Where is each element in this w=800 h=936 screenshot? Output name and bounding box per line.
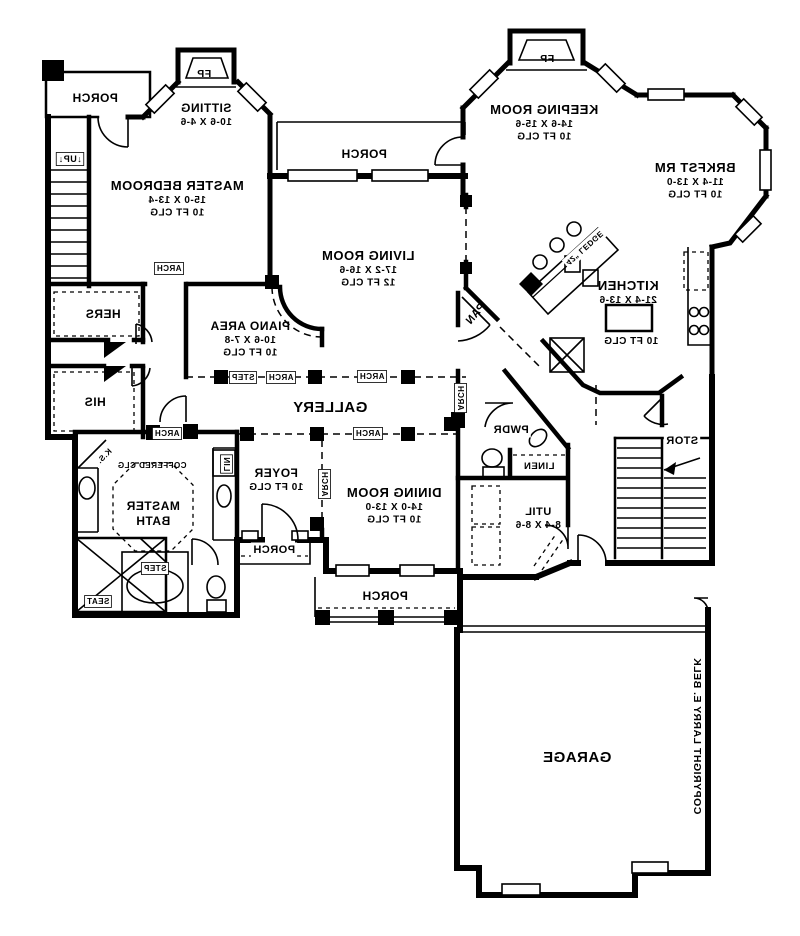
- label-brkfst-rm: BRKFST RM11-4 X 13-010 FT CLG: [654, 160, 735, 201]
- svg-text:21-4 X 13-6: 21-4 X 13-6: [599, 295, 657, 306]
- label-fp-keeping: FP: [540, 53, 554, 65]
- label-arch-gallery-2: ARCH: [357, 371, 386, 383]
- svg-text:ARCH: ARCH: [355, 429, 380, 438]
- window-garage-1: [502, 884, 540, 895]
- stoop-post-left: [242, 531, 258, 540]
- svg-text:10 FT CLG: 10 FT CLG: [150, 208, 205, 219]
- svg-text:STEP: STEP: [231, 373, 254, 382]
- svg-text:10-6 X 4-6: 10-6 X 4-6: [180, 117, 232, 128]
- label-master-bedroom: MASTER BEDROOM15-0 X 13-410 FT CLG: [110, 178, 243, 219]
- svg-text:PORCH: PORCH: [362, 589, 408, 603]
- label-his: HIS: [84, 395, 106, 409]
- svg-text:10 FT CLG: 10 FT CLG: [668, 190, 723, 201]
- stoop-post-right: [292, 531, 308, 540]
- svg-text:ARCH: ARCH: [359, 372, 384, 381]
- label-porch-stoop: PORCH: [251, 543, 297, 558]
- svg-text:LIVING ROOM: LIVING ROOM: [322, 248, 415, 263]
- label-gallery: GALLERY: [293, 399, 368, 416]
- svg-text:FP: FP: [540, 53, 554, 65]
- svg-text:BRKFST RM: BRKFST RM: [654, 160, 735, 175]
- svg-text:14-6 X 15-6: 14-6 X 15-6: [515, 119, 573, 130]
- label-util: UTIL8-4 X 8-6: [515, 506, 561, 531]
- svg-text:ARCH: ARCH: [456, 385, 465, 410]
- label-kitchen-clg: 10 FT CLG: [604, 336, 659, 347]
- label-porch-bottom: PORCH: [360, 588, 410, 605]
- svg-text:10 FT CLG: 10 FT CLG: [223, 348, 278, 359]
- svg-text:DINING ROOM: DINING ROOM: [346, 485, 441, 500]
- svg-text:COFFERED CLG: COFFERED CLG: [117, 461, 186, 470]
- window-living-2: [372, 170, 428, 181]
- svg-text:GARAGE: GARAGE: [543, 749, 612, 766]
- label-pantry: PAN: [463, 301, 488, 327]
- svg-text:HERS: HERS: [85, 307, 120, 321]
- svg-text:GALLERY: GALLERY: [293, 399, 368, 416]
- label-living-room: LIVING ROOM17-2 X 16-612 FT CLG: [322, 248, 415, 289]
- label-coffered-clg: COFFERED CLG: [117, 461, 186, 470]
- bar-stool-2: [550, 238, 564, 252]
- label-foyer: FOYER10 FT CLG: [249, 466, 304, 493]
- window-living-1: [288, 170, 357, 181]
- svg-text:SEAT: SEAT: [87, 597, 110, 606]
- sink-right: [217, 485, 231, 507]
- svg-text:15-0 X 13-4: 15-0 X 13-4: [148, 195, 206, 206]
- svg-text:ARCH: ARCH: [268, 373, 293, 382]
- svg-text:10 FT CLG: 10 FT CLG: [367, 515, 422, 526]
- label-arch-bath-hall: ARCH: [152, 428, 181, 440]
- label-dining-room: DINING ROOM14-0 X 13-010 FT CLG: [346, 485, 441, 526]
- svg-text:PORCH: PORCH: [72, 91, 118, 105]
- svg-text:ARCH: ARCH: [156, 264, 181, 273]
- label-hers: HERS: [85, 307, 120, 321]
- svg-text:ARCH: ARCH: [320, 471, 329, 496]
- washer-space: [472, 486, 500, 524]
- door-porch-keeping: [435, 137, 463, 165]
- floor-plan-drawing: PORCHFPSITTING10-6 X 4-6MASTER BEDROOM15…: [0, 0, 800, 936]
- label-arch-dining-v: ARCH: [455, 383, 467, 412]
- svg-text:KITCHEN: KITCHEN: [597, 278, 658, 293]
- window-keeping-right: [597, 64, 625, 92]
- window-keeping-left: [470, 70, 498, 98]
- window-brkfst-right: [760, 150, 771, 190]
- dryer-space: [472, 527, 500, 565]
- door-porch-bedroom: [98, 117, 128, 147]
- svg-text:8-4 X 8-6: 8-4 X 8-6: [515, 520, 561, 531]
- label-piano-area: PIANO AREA10-6 X 7-810 FT CLG: [210, 319, 290, 359]
- window-brkfst-top: [648, 89, 684, 100]
- svg-text:LINEN: LINEN: [524, 461, 555, 472]
- label-stairs-up: ↓UP↓: [56, 153, 84, 166]
- svg-text:STEP: STEP: [143, 564, 166, 573]
- door-gallery-hall: [160, 396, 186, 422]
- blueprint-page: PORCHFPSITTING10-6 X 4-6MASTER BEDROOM15…: [0, 0, 800, 936]
- toilet-bath: [207, 576, 225, 598]
- svg-text:ARCH: ARCH: [154, 429, 179, 438]
- svg-text:STOR: STOR: [666, 435, 698, 447]
- label-pwdr: PWDR: [491, 423, 531, 438]
- label-arch-foyer-v: ARCH: [319, 469, 331, 498]
- svg-text:PAN: PAN: [463, 301, 488, 327]
- toilet-powder: [482, 449, 502, 467]
- door-rear-entry: [578, 535, 606, 563]
- window-dining-2: [400, 565, 434, 576]
- svg-text:PORCH: PORCH: [341, 147, 387, 161]
- svg-text:10 FT CLG: 10 FT CLG: [604, 336, 659, 347]
- window-sitting-right: [238, 83, 266, 111]
- label-arch-gallery-3: ARCH: [353, 428, 382, 440]
- svg-text:MASTER: MASTER: [126, 499, 180, 513]
- svg-text:12 FT CLG: 12 FT CLG: [341, 278, 396, 289]
- svg-text:17-2 X 16-6: 17-2 X 16-6: [339, 265, 397, 276]
- kitchen-island: [606, 305, 652, 331]
- svg-text:14-0 X 13-0: 14-0 X 13-0: [365, 502, 423, 513]
- label-step-tub: STEP: [141, 563, 168, 575]
- bar-stool-3: [567, 222, 581, 236]
- svg-text:10 FT CLG: 10 FT CLG: [517, 132, 572, 143]
- svg-text:PORCH: PORCH: [253, 544, 295, 556]
- label-arch-bedroom: ARCH: [154, 263, 183, 275]
- label-garage: GARAGE: [543, 749, 612, 766]
- label-lin-cabinet: LIN: [221, 455, 233, 473]
- door-storage: [644, 398, 668, 424]
- label-arch-gallery-1: ARCH: [266, 372, 295, 384]
- window-brkfst-diag1: [736, 99, 762, 125]
- svg-text:K.S.: K.S.: [95, 447, 114, 466]
- window-dining-1: [336, 565, 369, 576]
- label-copyright: COPYRIGHT LARRY E. BELK: [691, 658, 703, 815]
- svg-text:↓UP↓: ↓UP↓: [58, 154, 82, 164]
- svg-text:PWDR: PWDR: [493, 424, 529, 436]
- svg-text:MASTER BEDROOM: MASTER BEDROOM: [110, 178, 243, 193]
- svg-text:UTIL: UTIL: [525, 506, 551, 518]
- label-porch-top-left: PORCH: [72, 91, 118, 105]
- label-keeping-room: KEEPING ROOM14-6 X 15-610 FT CLG: [490, 102, 599, 143]
- door-bath-toilet: [192, 539, 218, 565]
- svg-text:11-4 X 13-0: 11-4 X 13-0: [666, 177, 723, 188]
- label-linen: LINEN: [522, 460, 557, 474]
- label-sitting: SITTING10-6 X 4-6: [180, 101, 232, 128]
- svg-text:FOYER: FOYER: [254, 466, 298, 480]
- label-master-bath: MASTERBATH: [126, 499, 180, 528]
- stairs-rear: [615, 438, 708, 558]
- svg-text:LIN: LIN: [222, 457, 231, 471]
- label-knee-space: K.S.: [95, 447, 114, 466]
- svg-text:FP: FP: [197, 68, 211, 80]
- window-garage-2: [632, 862, 668, 873]
- stairs-up-front: [50, 170, 87, 278]
- svg-text:BATH: BATH: [136, 514, 170, 528]
- label-seat: SEAT: [85, 596, 112, 608]
- svg-text:10 FT CLG: 10 FT CLG: [249, 482, 304, 493]
- svg-text:PIANO AREA: PIANO AREA: [210, 319, 290, 333]
- svg-text:SITTING: SITTING: [181, 101, 232, 115]
- svg-text:KEEPING ROOM: KEEPING ROOM: [490, 102, 599, 117]
- label-kitchen: KITCHEN21-4 X 13-6: [597, 278, 658, 306]
- svg-text:COPYRIGHT LARRY E. BELK: COPYRIGHT LARRY E. BELK: [691, 658, 703, 815]
- sink-left: [79, 477, 95, 499]
- bar-stool-1: [533, 255, 547, 269]
- label-porch-top-center: PORCH: [341, 147, 387, 161]
- label-step-gallery: STEP: [229, 372, 256, 384]
- svg-text:HIS: HIS: [84, 395, 106, 409]
- kitchen-sink-2: [583, 270, 598, 286]
- label-fp-sitting: FP: [197, 68, 211, 80]
- svg-text:10-6 X 7-8: 10-6 X 7-8: [224, 335, 276, 346]
- label-stor: STOR: [664, 434, 700, 449]
